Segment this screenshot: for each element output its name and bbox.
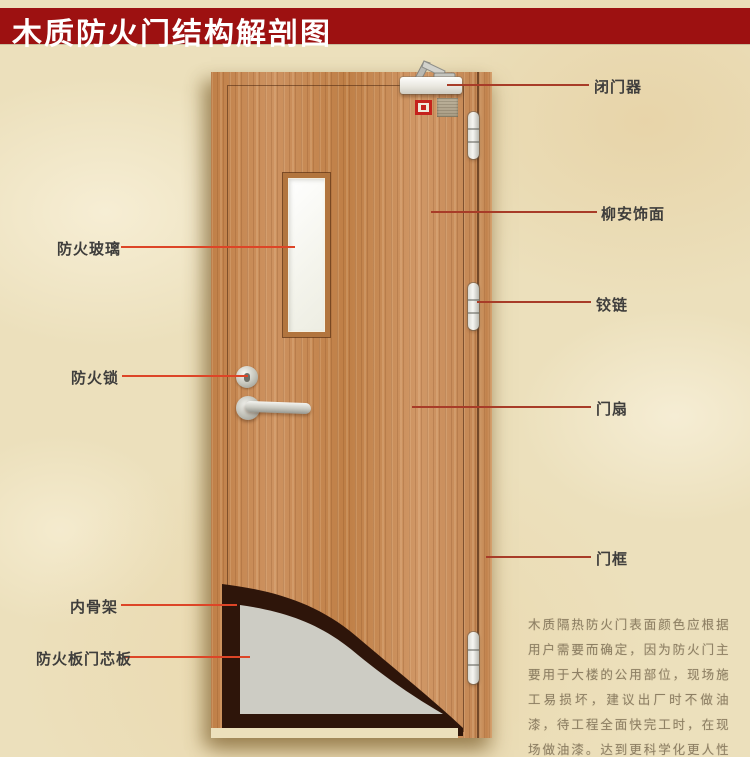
exit-indicator (415, 100, 432, 115)
description-paragraph: 木质隔热防火门表面颜色应根据用户需要而确定，因为防火门主要用于大楼的公用部位，现… (528, 612, 730, 757)
exit-indicator-dot (421, 105, 426, 110)
hinge-top (468, 112, 479, 159)
label-door-frame: 门框 (596, 548, 628, 569)
callout-line-inner-skeleton (121, 604, 237, 606)
cutaway-section (211, 578, 492, 738)
fire-glass-window (283, 173, 330, 337)
callout-line-core-panel (124, 656, 250, 658)
label-core-panel: 防火板门芯板 (36, 648, 132, 669)
callout-line-door-closer (447, 84, 589, 86)
callout-line-fire-glass (121, 246, 295, 248)
callout-line-fire-lock (122, 375, 248, 377)
label-door-leaf: 门扇 (596, 398, 628, 419)
callout-line-lauan-veneer (431, 211, 597, 213)
label-fire-glass: 防火玻璃 (57, 238, 121, 259)
infographic-page: 木质防火门结构解剖图 防火玻璃 防火锁 (0, 0, 750, 757)
lock-cylinder (236, 366, 258, 388)
lever-handle (245, 401, 311, 414)
closer-mount-plate (437, 98, 458, 117)
core-panel-shape (240, 605, 443, 714)
label-door-closer: 闭门器 (594, 76, 642, 97)
hinge-middle (468, 283, 479, 330)
page-title: 木质防火门结构解剖图 (12, 9, 332, 53)
label-lauan-veneer: 柳安饰面 (601, 203, 665, 224)
label-fire-lock: 防火锁 (71, 367, 119, 388)
callout-line-door-leaf (412, 406, 591, 408)
label-hinge: 铰链 (596, 294, 628, 315)
label-inner-skeleton: 内骨架 (70, 596, 118, 617)
callout-line-hinge (477, 301, 591, 303)
title-banner: 木质防火门结构解剖图 (0, 8, 750, 44)
fire-door-illustration (211, 72, 492, 738)
cutaway-floor (211, 728, 458, 738)
callout-line-door-frame (486, 556, 591, 558)
